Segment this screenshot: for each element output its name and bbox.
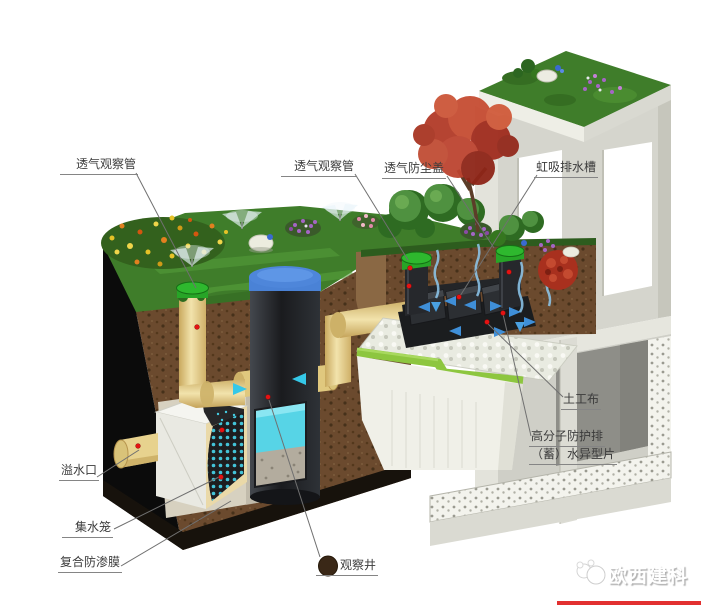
label-geotextile: 土工布 (561, 392, 601, 410)
label-siphon-channel: 虹吸排水槽 (534, 160, 598, 178)
watermark-text: 欧西建科 (608, 561, 688, 588)
label-text: 虹吸排水槽 (536, 160, 596, 174)
label-vent-pipe-left: 透气观察管 (60, 157, 138, 175)
label-vent-pipe-mid: 透气观察管 (281, 159, 356, 177)
label-text: 土工布 (563, 392, 599, 406)
label-vent-dust-cap: 透气防尘盖 (382, 161, 446, 179)
watermark-icon (577, 560, 605, 584)
label-overflow-outlet: 溢水口 (59, 463, 99, 481)
label-drain-sheet-line2: （蓄）水异型片 (529, 447, 617, 465)
building-right-edge (658, 85, 671, 318)
diagram-canvas: 透气观察管 透气观察管 透气防尘盖 虹吸排水槽 土工布 高分子防护排 （蓄）水异… (0, 0, 701, 609)
label-text: 透气观察管 (76, 157, 136, 171)
vent-green-cap (402, 252, 432, 264)
label-drain-sheet-line1: 高分子防护排 (529, 429, 605, 447)
vent-riser-pipe (179, 292, 206, 388)
illustration (0, 0, 701, 609)
label-text: 溢水口 (61, 463, 97, 477)
watermark-logo: 欧西建科 (608, 561, 688, 588)
planter-rock (563, 247, 579, 257)
riser-green-cap (177, 282, 209, 294)
label-text: 透气防尘盖 (384, 161, 444, 175)
label-text: 集水笼 (75, 520, 111, 534)
label-composite-membrane: 复合防渗膜 (58, 555, 122, 573)
window-opening-right (603, 142, 652, 296)
label-observation-well: 观察井 (316, 558, 378, 576)
label-text: 高分子防护排 (531, 429, 603, 443)
label-text: （蓄）水异型片 (531, 447, 615, 461)
label-text: 复合防渗膜 (60, 555, 120, 569)
drain-sheet-wall-strip (648, 336, 671, 472)
bottom-red-rule (557, 601, 701, 605)
overflow-stub-cap (114, 440, 128, 468)
label-text: 观察井 (340, 558, 376, 572)
vent-green-cap (496, 246, 524, 257)
roof-rock (537, 70, 557, 82)
label-collection-cage: 集水笼 (62, 520, 113, 538)
label-text: 透气观察管 (294, 159, 354, 173)
